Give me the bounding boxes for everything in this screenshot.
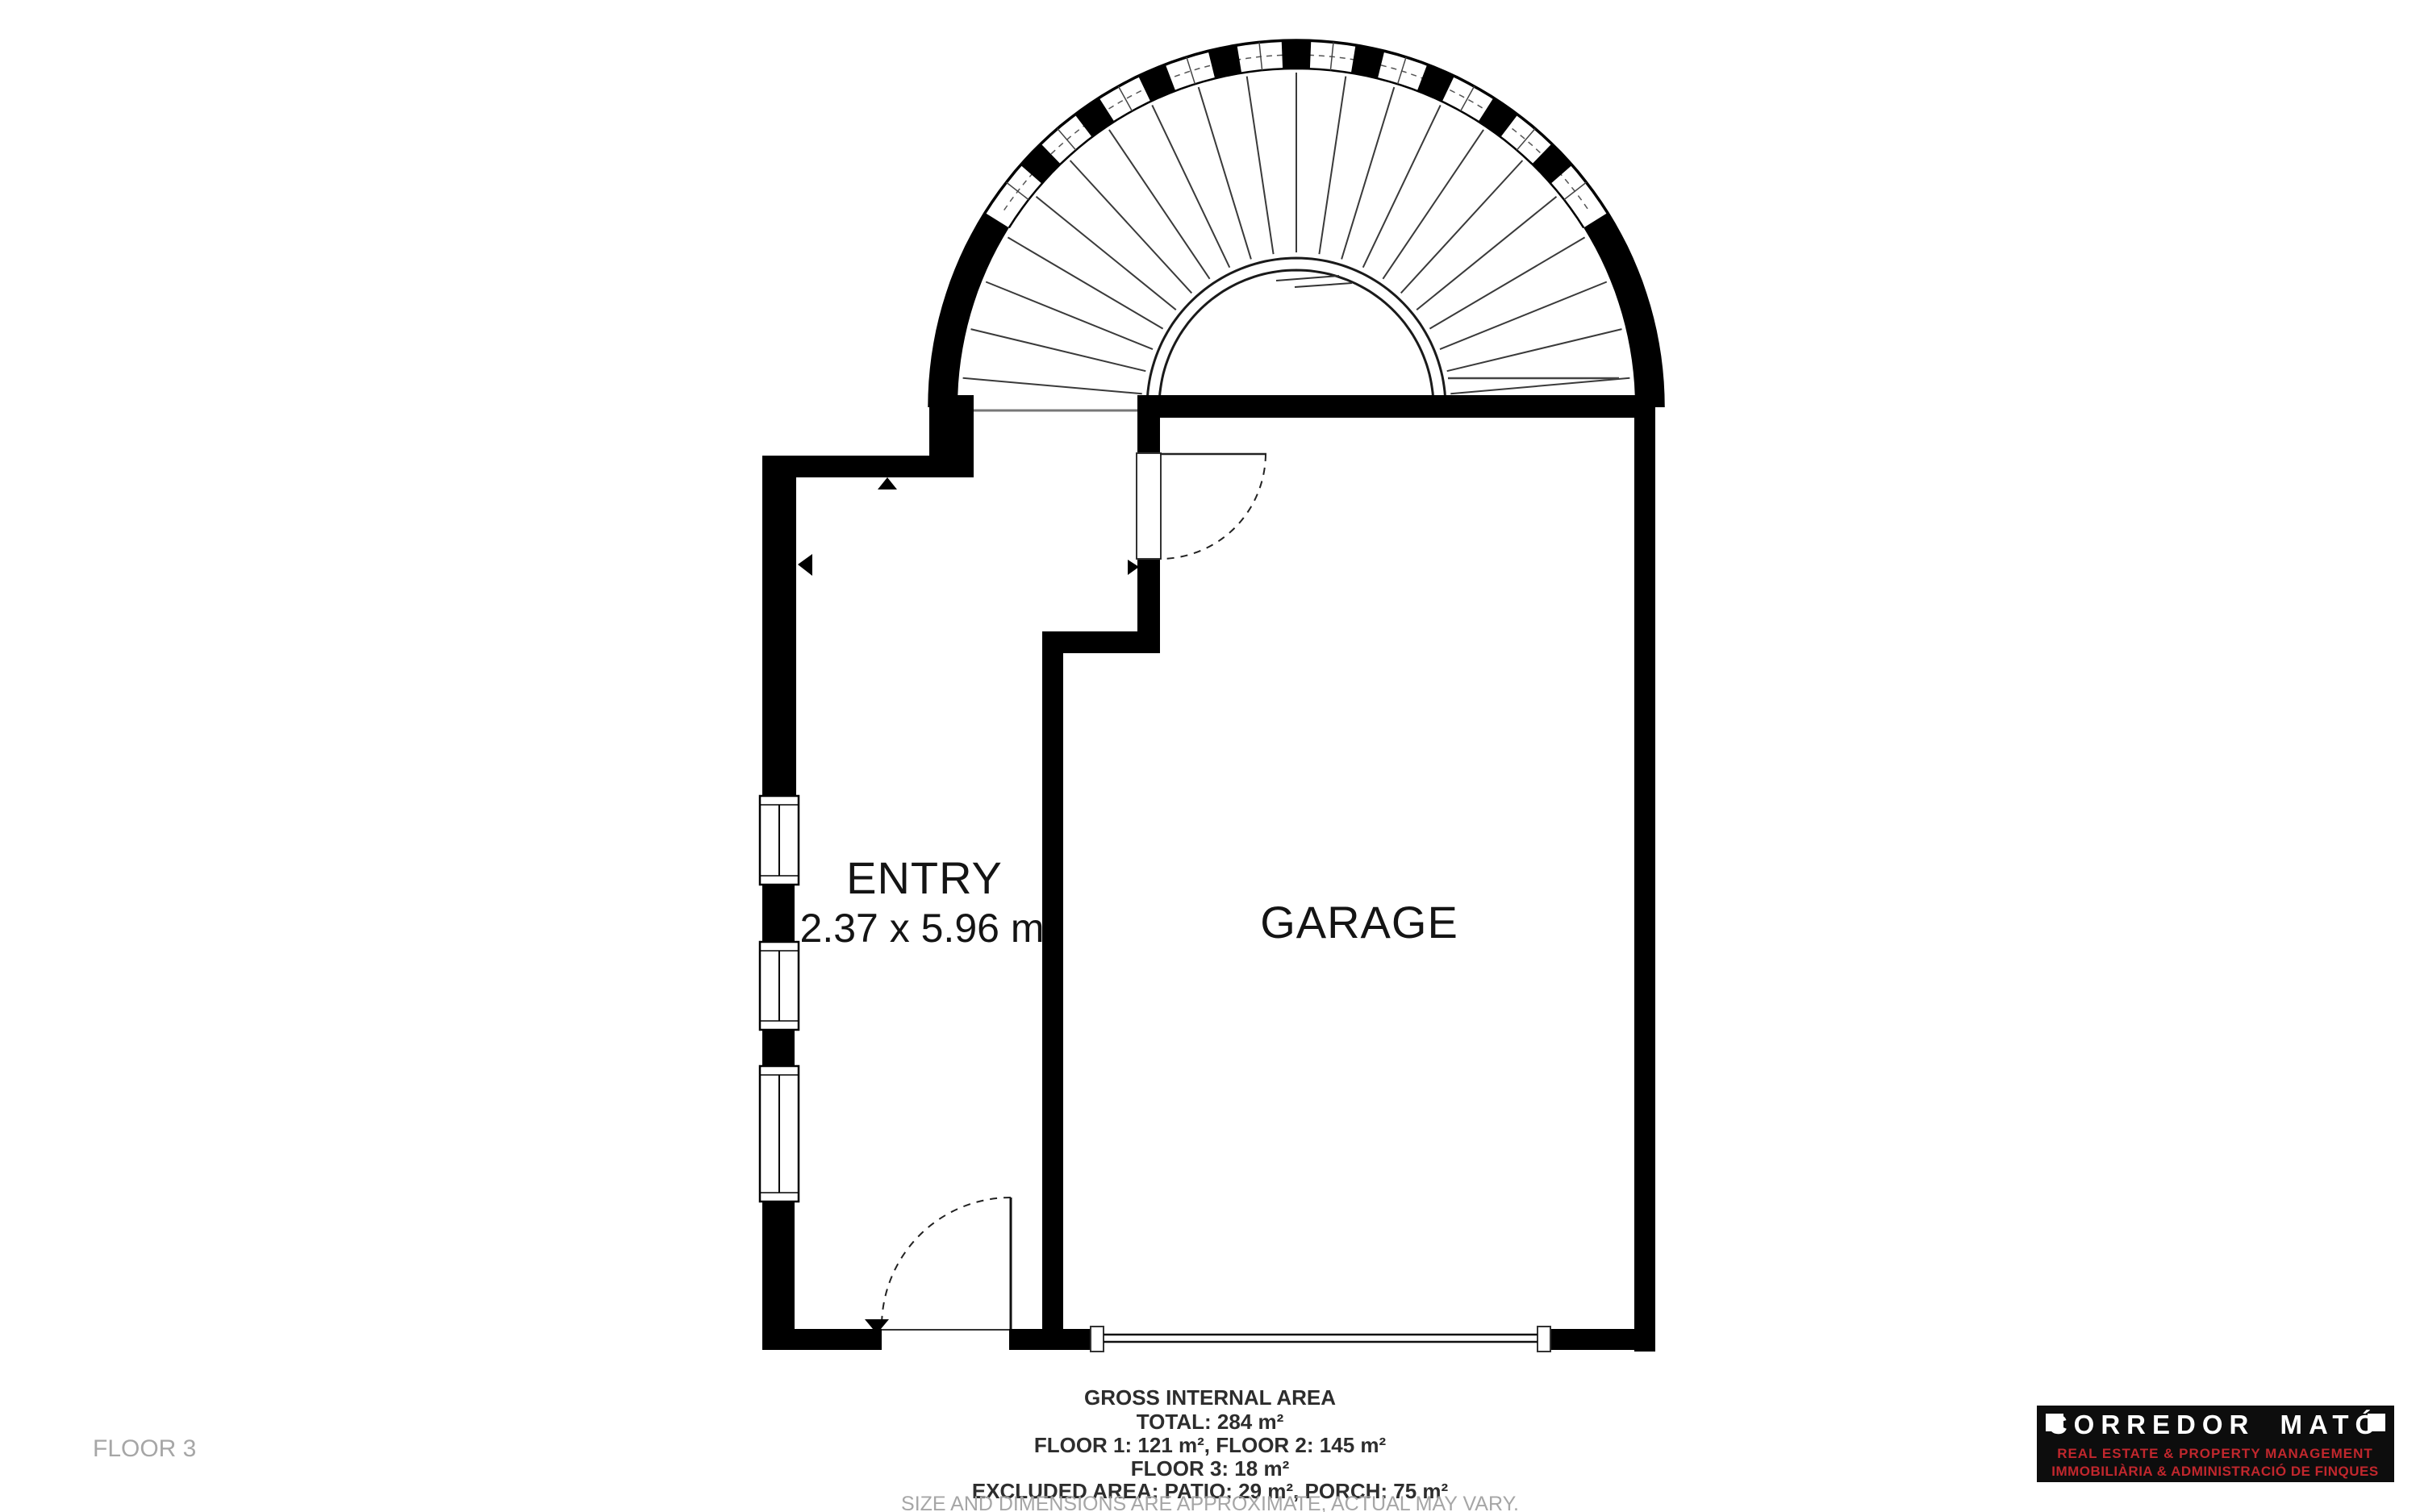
footer-title: GROSS INTERNAL AREA	[1084, 1385, 1336, 1410]
logo-title: CORREDOR MATÓ	[2048, 1410, 2382, 1439]
entry-bottom-wall-left	[762, 1329, 882, 1350]
room-label-garage: GARAGE	[1260, 897, 1458, 948]
logo-subtitle-ca: IMMOBILIÀRIA & ADMINISTRACIÓ DE FINQUES	[2051, 1464, 2378, 1479]
logo-subtitle-en: REAL ESTATE & PROPERTY MANAGEMENT	[2057, 1446, 2373, 1461]
arch-window-post	[1282, 40, 1312, 69]
footer-floor-3: FLOOR 3: 18 m²	[1131, 1456, 1290, 1481]
entry-garage-divider-wall	[1042, 631, 1063, 1350]
window-1	[760, 796, 799, 885]
window-2	[760, 942, 799, 1030]
door-opening	[1137, 453, 1161, 559]
entry-bottom-wall-right	[1009, 1329, 1091, 1350]
garage-door-post-upper	[1137, 414, 1160, 453]
room-label-entry: ENTRY	[846, 852, 1003, 903]
threshold-left	[1091, 1327, 1104, 1352]
left-wall-pier-2	[762, 1030, 795, 1066]
left-wall-upper	[762, 456, 796, 796]
footer-disclaimer: SIZE AND DIMENSIONS ARE APPROXIMATE, ACT…	[901, 1493, 1519, 1512]
floorplan-canvas: ENTRY 2.37 x 5.96 m GARAGE GROSS INTERNA…	[0, 0, 2420, 1512]
room-dimensions-entry: 2.37 x 5.96 m	[800, 906, 1045, 951]
threshold-right	[1538, 1327, 1550, 1352]
left-wall-pier-1	[762, 885, 795, 942]
garage-right-wall	[1634, 413, 1655, 1352]
floor-label: FLOOR 3	[93, 1435, 196, 1462]
footer-total: TOTAL: 284 m²	[1137, 1410, 1284, 1434]
garage-top-wall	[1137, 395, 1655, 418]
garage-door-post-lower	[1137, 559, 1160, 653]
arch-springing-wall	[929, 395, 974, 477]
agency-logo: CORREDOR MATÓ REAL ESTATE & PROPERTY MAN…	[2037, 1406, 2394, 1482]
left-wall-lower	[762, 1202, 795, 1350]
footer-floors-1-2: FLOOR 1: 121 m², FLOOR 2: 145 m²	[1034, 1433, 1387, 1457]
left-wall-windows	[760, 796, 799, 1202]
window-3	[760, 1066, 799, 1202]
bottom-right-wall	[1550, 1329, 1655, 1350]
